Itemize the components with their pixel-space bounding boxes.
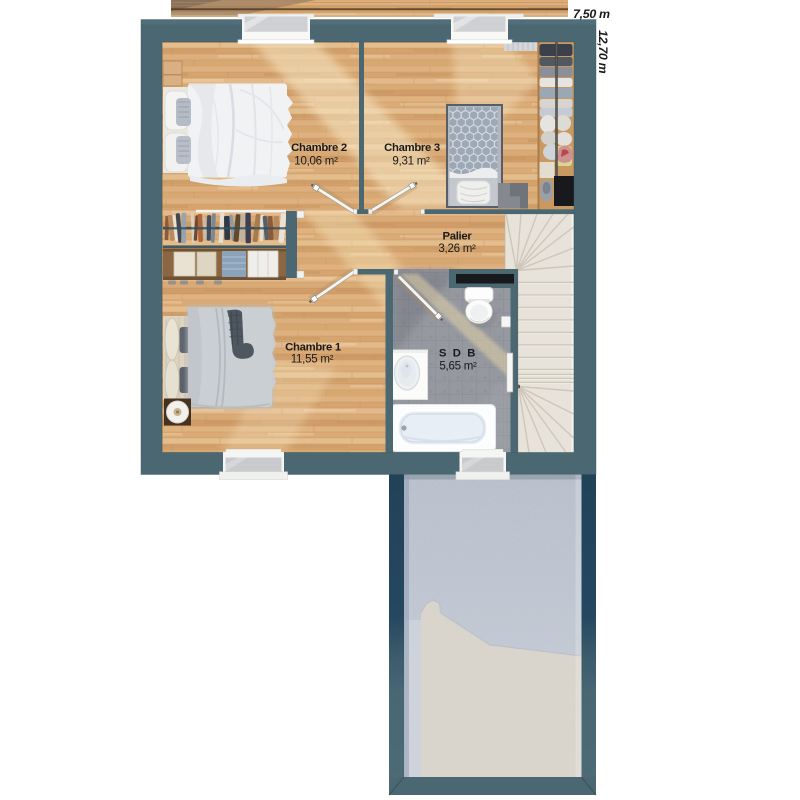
- svg-text:3,26 m²: 3,26 m²: [438, 243, 476, 255]
- svg-text:Palier: Palier: [443, 231, 473, 243]
- svg-text:Chambre 1: Chambre 1: [285, 342, 341, 354]
- svg-text:Chambre 3: Chambre 3: [384, 142, 440, 154]
- svg-text:12,70 m: 12,70 m: [596, 30, 610, 74]
- svg-text:9,31 m²: 9,31 m²: [392, 156, 430, 168]
- svg-text:10,06 m²: 10,06 m²: [294, 156, 338, 168]
- svg-text:11,55 m²: 11,55 m²: [291, 354, 334, 366]
- svg-text:Chambre 2: Chambre 2: [291, 142, 347, 154]
- svg-text:7,50 m: 7,50 m: [573, 7, 610, 21]
- svg-text:5,65 m²: 5,65 m²: [439, 361, 477, 373]
- svg-text:S D B: S D B: [439, 348, 477, 360]
